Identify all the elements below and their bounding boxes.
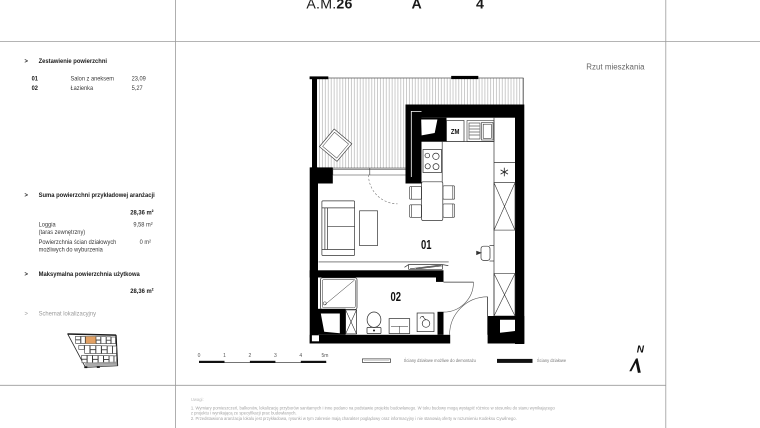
svg-text:>: > xyxy=(25,192,29,200)
svg-text:>: > xyxy=(25,310,29,318)
svg-text:28,36 m²: 28,36 m² xyxy=(130,209,153,217)
svg-text:4: 4 xyxy=(299,353,302,359)
svg-text:9,58 m²: 9,58 m² xyxy=(133,221,152,229)
svg-text:01: 01 xyxy=(32,75,39,83)
svg-text:Ściany działowe: Ściany działowe xyxy=(537,358,567,363)
svg-text:Suma powierzchni przykładowej: Suma powierzchni przykładowej aranżacji xyxy=(39,192,155,200)
svg-text:Schemat lokalizacyjny: Schemat lokalizacyjny xyxy=(39,310,97,318)
svg-text:Ściany działowe możliwe do dem: Ściany działowe możliwe do demontażu xyxy=(404,358,477,363)
svg-text:28,36 m²: 28,36 m² xyxy=(130,287,153,295)
svg-text:02: 02 xyxy=(32,85,39,93)
svg-text:23,09: 23,09 xyxy=(132,75,147,83)
svg-text:A: A xyxy=(412,0,422,13)
svg-text:0: 0 xyxy=(198,353,201,359)
svg-text:3: 3 xyxy=(274,353,277,359)
svg-text:Zestawienie powierzchni: Zestawienie powierzchni xyxy=(39,58,108,66)
svg-text:Uwagi:: Uwagi: xyxy=(191,397,204,402)
svg-text:N: N xyxy=(637,345,645,356)
svg-text:Maksymalna powierzchnia użytko: Maksymalna powierzchnia użytkowa xyxy=(39,270,141,278)
svg-text:02: 02 xyxy=(390,291,401,305)
svg-text:0 m²: 0 m² xyxy=(140,239,151,247)
svg-text:Rzut mieszkania: Rzut mieszkania xyxy=(586,63,645,72)
svg-text:Salon z aneksem: Salon z aneksem xyxy=(71,75,114,83)
svg-text:1: 1 xyxy=(223,353,226,359)
svg-text:>: > xyxy=(25,270,29,278)
svg-text:Łazienka: Łazienka xyxy=(71,85,94,93)
svg-text:ZM: ZM xyxy=(451,128,460,136)
svg-text:5,27: 5,27 xyxy=(132,85,144,93)
svg-text:01: 01 xyxy=(421,239,432,253)
svg-text:2. Przedstawiona aranżacja lok: 2. Przedstawiona aranżacja lokalu jest p… xyxy=(191,416,517,421)
svg-text:5m: 5m xyxy=(322,353,329,359)
svg-text:Powierzchnia ścian działowych: Powierzchnia ścian działowych xyxy=(39,239,117,247)
svg-text:Loggia: Loggia xyxy=(39,221,57,229)
svg-text:2: 2 xyxy=(249,353,252,359)
svg-text:(taras zewnętrzny): (taras zewnętrzny) xyxy=(39,229,86,237)
svg-text:A.M.26: A.M.26 xyxy=(306,0,352,13)
svg-text:>: > xyxy=(25,58,29,66)
svg-text:możliwych do wyburzenia: możliwych do wyburzenia xyxy=(39,246,104,254)
svg-text:4: 4 xyxy=(476,0,484,13)
